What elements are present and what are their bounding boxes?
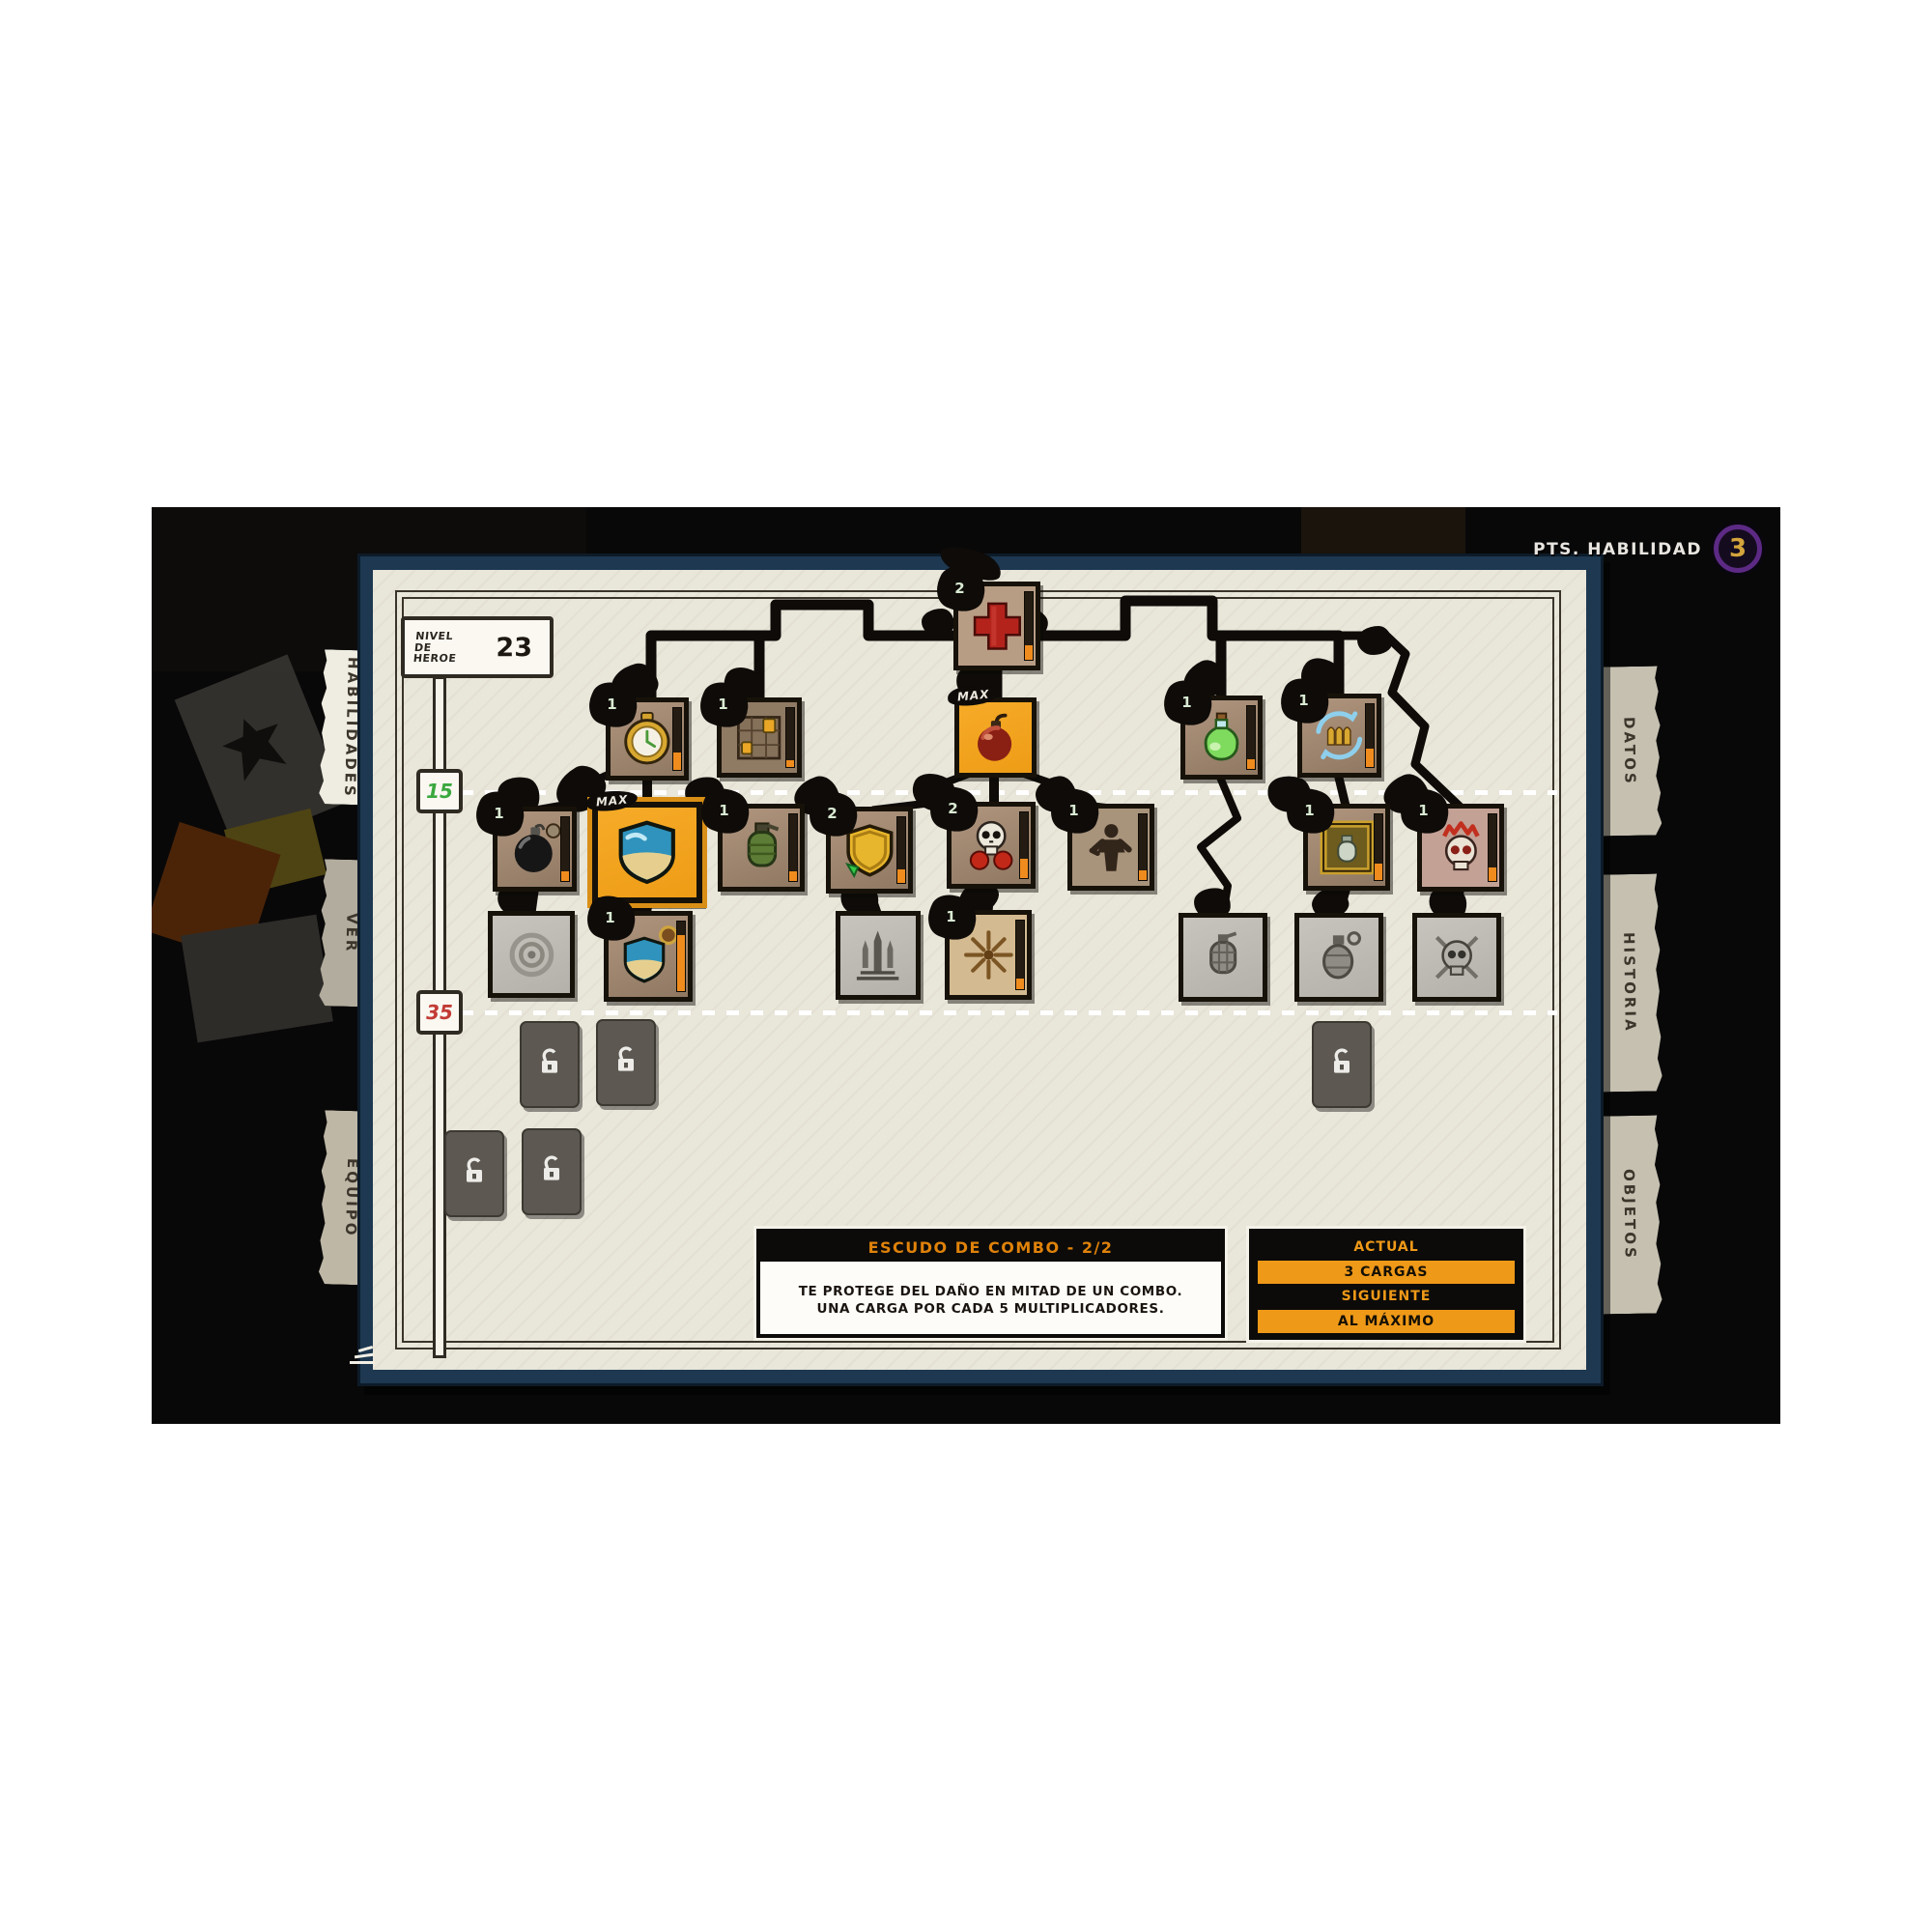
locked-skill-slot <box>522 1128 582 1215</box>
ink-splat <box>1357 626 1392 655</box>
skill-node-blades[interactable] <box>836 911 921 1000</box>
skill-rank-badge: 2 <box>817 798 847 828</box>
skill-node-stopwatch[interactable]: 1 <box>606 697 689 781</box>
skill-rank-badge: 1 <box>1289 685 1319 715</box>
gray-grenade-b-icon <box>1309 927 1369 987</box>
skill-progress-bar <box>676 921 686 992</box>
gray-vortex-icon <box>502 925 561 984</box>
skill-rank-badge: 1 <box>484 798 514 828</box>
skill-rank-badge: 1 <box>1059 795 1089 825</box>
skill-node-framedgrenade[interactable]: 1 <box>1303 804 1390 891</box>
skill-progress-bar <box>785 707 795 768</box>
skill-node-comboshield[interactable]: MAX <box>592 802 702 903</box>
skill-rank-badge: 2 <box>945 573 975 603</box>
skill-node-grenadegray[interactable] <box>1294 913 1383 1002</box>
game-screen: PTS. HABILIDAD 3 HABILIDADES VER EQUIPO … <box>152 507 1780 1424</box>
skill-points-value: 3 <box>1729 534 1747 563</box>
open-padlock-icon <box>1322 1043 1361 1086</box>
skill-rank-badge: 1 <box>1294 795 1324 825</box>
skill-node-redskull[interactable]: 1 <box>1417 804 1504 892</box>
tab-objetos[interactable]: OBJETOS <box>1597 1115 1662 1314</box>
skill-progress-bar <box>1015 920 1025 990</box>
skill-rank-badge: 1 <box>597 689 627 719</box>
ink-splat <box>922 609 954 636</box>
skill-progress-bar <box>1138 813 1148 881</box>
open-padlock-icon <box>607 1041 645 1084</box>
status-row-current: 3 CARGAS <box>1258 1261 1515 1284</box>
status-row-siguiente: SIGUIENTE <box>1258 1286 1515 1309</box>
skill-node-figure[interactable]: 1 <box>1067 804 1154 891</box>
skill-progress-bar <box>788 813 798 882</box>
skill-rank-badge: 1 <box>1172 687 1202 717</box>
skill-node-sunburst[interactable]: 1 <box>945 910 1032 1000</box>
gray-grenade-a-icon <box>1193 927 1253 987</box>
skill-rank-badge: 1 <box>936 901 966 931</box>
level-marker-35: 35 <box>416 990 463 1035</box>
open-padlock-icon <box>532 1151 571 1193</box>
tab-datos[interactable]: DATOS <box>1597 666 1662 836</box>
skill-node-skullgray[interactable] <box>1412 913 1501 1002</box>
tooltip-line: TE PROTEGE DEL DAÑO EN MITAD DE UN COMBO… <box>799 1284 1182 1299</box>
skill-rank-badge: 1 <box>1408 795 1438 825</box>
tooltip-body: TE PROTEGE DEL DAÑO EN MITAD DE UN COMBO… <box>760 1262 1221 1338</box>
status-row-next: AL MÁXIMO <box>1258 1310 1515 1333</box>
skill-points-badge: 3 <box>1714 525 1762 573</box>
hero-level-value: 23 <box>496 633 532 663</box>
skill-node-potion[interactable]: 1 <box>1180 696 1263 780</box>
skill-node-skullfists[interactable]: 2 <box>947 802 1036 889</box>
open-padlock-icon <box>530 1043 569 1086</box>
skill-node-grid[interactable]: 1 <box>717 697 802 778</box>
tooltip-header: ESCUDO DE COMBO - 2/2 <box>760 1233 1221 1262</box>
locked-skill-slot <box>444 1130 504 1217</box>
combo-shield-icon <box>610 818 685 887</box>
skill-node-goldshield[interactable]: 2 <box>826 807 913 894</box>
skill-progress-bar <box>1488 813 1497 882</box>
desk-paper-logo <box>175 654 348 847</box>
skill-progress-bar <box>1374 813 1383 881</box>
skill-node-health[interactable]: 2 <box>953 582 1040 670</box>
gray-skull-icon <box>1427 927 1487 987</box>
skill-progress-bar <box>560 816 570 882</box>
skill-node-shieldsmall[interactable]: 1 <box>604 911 693 1002</box>
skill-points-label: PTS. HABILIDAD <box>1533 540 1702 559</box>
skill-node-blackbomb[interactable]: 1 <box>493 807 577 892</box>
skill-rank-badge: 1 <box>709 795 739 825</box>
skill-points-hud: PTS. HABILIDAD 3 <box>1436 525 1770 579</box>
locked-skill-slot <box>1312 1021 1372 1108</box>
skill-progress-bar <box>1365 703 1375 768</box>
skill-rank-badge: 1 <box>595 902 625 932</box>
hero-level-box: NIVEL DE HEROE 23 <box>401 616 554 678</box>
tooltip-line: UNA CARGA POR CADA 5 MULTIPLICADORES. <box>817 1301 1165 1317</box>
skill-progress-bar <box>1019 811 1029 879</box>
skill-node-vortex[interactable] <box>488 911 575 998</box>
tooltip-title: ESCUDO DE COMBO - 2/2 <box>868 1238 1114 1257</box>
hero-level-label: NIVEL DE HEROE <box>412 631 459 665</box>
skill-progress-bar <box>1024 591 1034 661</box>
desk-paper-gray <box>181 915 333 1043</box>
skill-rank-badge: 1 <box>708 689 738 719</box>
locked-skill-slot <box>596 1019 656 1106</box>
locked-skill-slot <box>520 1021 580 1108</box>
page-stack-edges <box>350 1339 379 1364</box>
skill-progress-bar <box>672 707 682 771</box>
skill-progress-bar <box>896 816 906 884</box>
gray-blades-icon <box>849 925 906 985</box>
tab-label: OBJETOS <box>1620 1169 1639 1261</box>
skill-node-grenade[interactable]: 1 <box>718 804 805 892</box>
open-padlock-icon <box>455 1152 494 1195</box>
skill-status-panel: ACTUAL 3 CARGAS SIGUIENTE AL MÁXIMO <box>1249 1229 1523 1340</box>
skill-rank-badge: 2 <box>938 793 968 823</box>
skill-node-pineapple[interactable] <box>1179 913 1267 1002</box>
tab-historia[interactable]: HISTORIA <box>1597 873 1662 1092</box>
skill-node-ammo[interactable]: 1 <box>1297 694 1381 778</box>
skill-node-bomb-max[interactable]: MAX <box>954 697 1037 778</box>
status-row-actual: ACTUAL <box>1258 1236 1515 1259</box>
screenshot-canvas: PTS. HABILIDAD 3 HABILIDADES VER EQUIPO … <box>0 0 1932 1932</box>
tab-label: DATOS <box>1620 717 1638 786</box>
skill-progress-bar <box>1246 705 1256 770</box>
level-marker-15: 15 <box>416 769 463 813</box>
skill-tooltip: ESCUDO DE COMBO - 2/2 TE PROTEGE DEL DAÑ… <box>756 1229 1225 1338</box>
cherry-bomb-icon <box>968 711 1023 764</box>
level-35-line <box>461 1010 1557 1015</box>
tab-label: HISTORIA <box>1620 932 1639 1034</box>
